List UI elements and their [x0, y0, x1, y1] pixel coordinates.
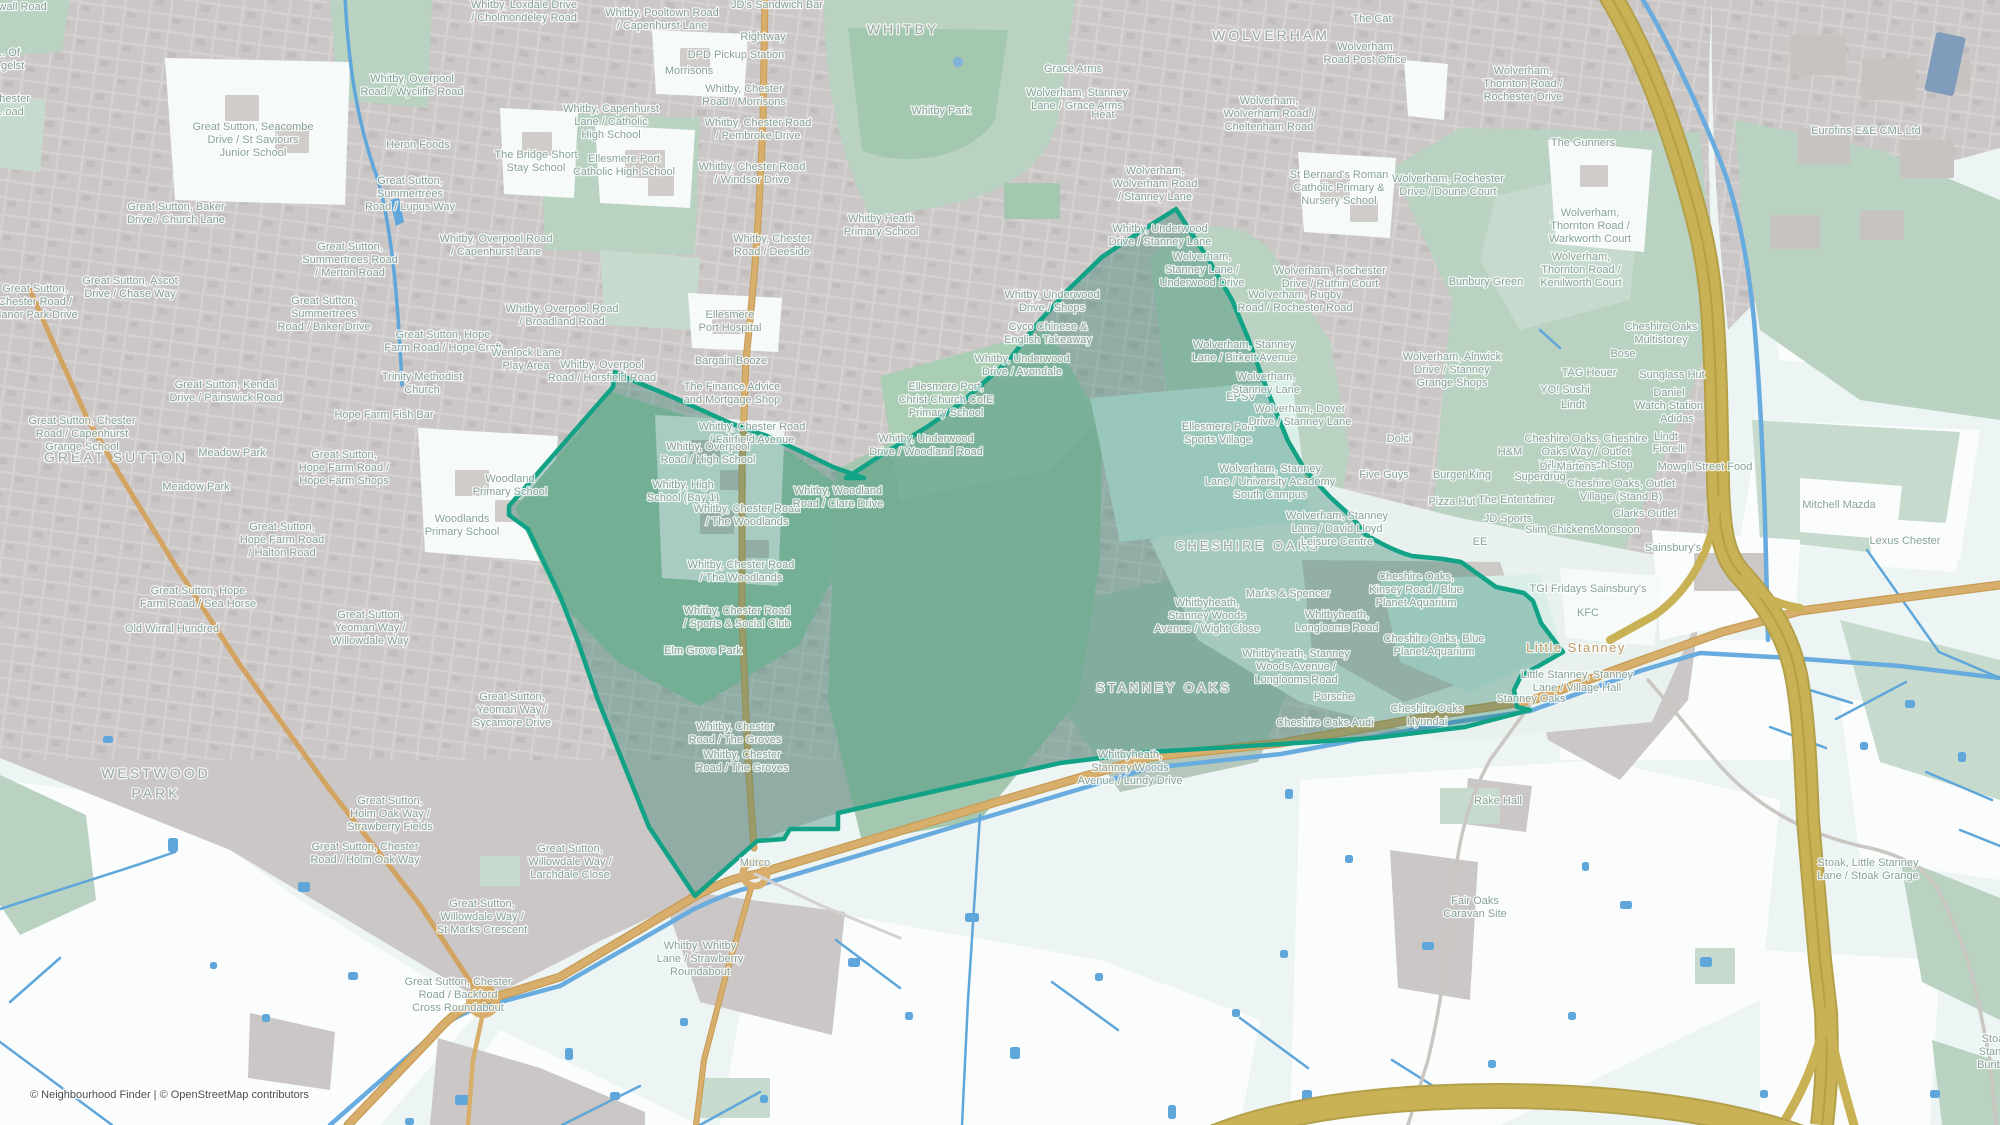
svg-text:Meadow Park: Meadow Park — [198, 447, 266, 459]
svg-text:Great Sutton,Holm Oak Way /Str: Great Sutton,Holm Oak Way /Strawberry Fi… — [347, 795, 433, 833]
svg-text:Great Sutton, AscotDrive / Cha: Great Sutton, AscotDrive / Chase Way — [82, 275, 177, 300]
svg-text:Wolverham, RochesterDrive / Ru: Wolverham, RochesterDrive / Ruthin Court — [1274, 265, 1386, 290]
svg-text:Pizza Hut: Pizza Hut — [1428, 496, 1475, 508]
svg-text:Marks & Spencer: Marks & Spencer — [1246, 588, 1331, 600]
svg-text:St Bernard's RomanCatholic Pri: St Bernard's RomanCatholic Primary &Nurs… — [1290, 169, 1389, 207]
svg-text:Grace Arms: Grace Arms — [1044, 63, 1103, 75]
svg-text:Wolverham, RochesterDrive / Do: Wolverham, RochesterDrive / Doune Court — [1392, 173, 1504, 198]
svg-text:Bargain Booze: Bargain Booze — [695, 355, 767, 367]
svg-text:Rake Hall: Rake Hall — [1474, 795, 1522, 807]
svg-text:DPD Pickup Station: DPD Pickup Station — [688, 49, 785, 61]
svg-text:EllesmerePort Hospital: EllesmerePort Hospital — [699, 309, 762, 334]
svg-text:Whitby, Chester Road/ The Wood: Whitby, Chester Road/ The Woodlands — [694, 503, 801, 528]
svg-text:Mitchell Mazda: Mitchell Mazda — [1802, 499, 1876, 511]
svg-text:Monsoon: Monsoon — [1594, 524, 1639, 536]
svg-text:Great Sutton, ChesterRoad / Ba: Great Sutton, ChesterRoad / BackfordCros… — [405, 976, 512, 1014]
svg-text:JD's Sandwich Bar: JD's Sandwich Bar — [731, 0, 823, 11]
svg-text:Wolverham, AlnwickDrive / Stan: Wolverham, AlnwickDrive / StanneyGrange … — [1403, 351, 1502, 389]
svg-text:Little Stanney, StanneyLane /: Little Stanney, StanneyLane / Village Ha… — [1521, 669, 1634, 694]
svg-text:The Bridge ShortStay School: The Bridge ShortStay School — [494, 149, 577, 174]
svg-text:Whitby, ChesterRoad / Deeside: Whitby, ChesterRoad / Deeside — [733, 233, 811, 258]
svg-text:YO! Sushi: YO! Sushi — [1540, 384, 1590, 396]
svg-text:Slim Chickens: Slim Chickens — [1525, 524, 1595, 536]
svg-text:Whitby, Overpool Road/ Broadla: Whitby, Overpool Road/ Broadland Road — [506, 303, 619, 328]
svg-text:Great Sutton,Willowdale Way /S: Great Sutton,Willowdale Way /St Marks Cr… — [437, 898, 527, 936]
svg-text:Heron Foods: Heron Foods — [386, 139, 450, 151]
svg-text:Whitby HeathPrimary School: Whitby HeathPrimary School — [844, 213, 919, 238]
svg-text:Porsche: Porsche — [1314, 691, 1354, 703]
svg-text:STANNEY OAKS: STANNEY OAKS — [1096, 680, 1232, 695]
svg-text:Great Sutton,Chester Road /Man: Great Sutton,Chester Road /Manor Park Dr… — [0, 283, 78, 321]
svg-text:Whitbyheath, StanneyWoods Aven: Whitbyheath, StanneyWoods Avenue /Longlo… — [1242, 648, 1350, 686]
svg-text:Fiorelli: Fiorelli — [1653, 443, 1685, 455]
svg-text:Heat: Heat — [1091, 109, 1114, 121]
svg-text:Wolverham, RugbyRoad / Rochest: Wolverham, RugbyRoad / Rochester Road — [1238, 289, 1353, 314]
svg-text:Whitby, ChesterRoad / Morrison: Whitby, ChesterRoad / Morrisons — [702, 83, 786, 108]
svg-text:Whitby, ChesterRoad / The Grov: Whitby, ChesterRoad / The Groves — [689, 721, 782, 746]
svg-text:The Finance Adviceand Mortgage: The Finance Adviceand Mortgage Shop — [684, 381, 781, 406]
svg-text:Great Sutton,Yeoman Way /Willo: Great Sutton,Yeoman Way /Willowdale Way — [331, 609, 409, 647]
svg-text:Whitby, ChesterRoad / The Grov: Whitby, ChesterRoad / The Groves — [696, 749, 789, 774]
svg-text:TGI Fridays Sainsbury's: TGI Fridays Sainsbury's — [1529, 583, 1647, 595]
svg-text:Lindt: Lindt — [1654, 431, 1678, 443]
svg-text:Burger King: Burger King — [1433, 469, 1491, 481]
svg-text:Murco: Murco — [740, 857, 771, 869]
svg-text:Old Wirral Hundred: Old Wirral Hundred — [125, 623, 219, 635]
svg-text:Rightway: Rightway — [740, 31, 786, 43]
svg-text:Whitby, Loxdale Drive/ Cholmon: Whitby, Loxdale Drive/ Cholmondeley Road — [471, 0, 577, 24]
svg-text:Great Sutton,Hope Farm Road /H: Great Sutton,Hope Farm Road /Hope Farm S… — [299, 449, 390, 487]
svg-text:Whitby, OverpoolRoad / High Sc: Whitby, OverpoolRoad / High School — [661, 441, 756, 466]
svg-text:Lindt: Lindt — [1561, 399, 1585, 411]
svg-text:Whitby Park: Whitby Park — [911, 105, 971, 117]
svg-text:Whitby, Chester Road/ Sports &: Whitby, Chester Road/ Sports & Social Cl… — [684, 605, 791, 630]
svg-text:Little Stanney: Little Stanney — [1526, 640, 1626, 655]
svg-text:Adidas: Adidas — [1660, 413, 1694, 425]
svg-text:Eurofins E&E CML Ltd: Eurofins E&E CML Ltd — [1811, 125, 1921, 137]
svg-text:Wolverham,Thornton Road /Kenil: Wolverham,Thornton Road /Kenilworth Cour… — [1540, 251, 1621, 289]
svg-text:WoodlandsPrimary School: WoodlandsPrimary School — [425, 513, 500, 538]
svg-text:The Entertainer: The Entertainer — [1478, 494, 1554, 506]
svg-text:Whitby, OverpoolRoad / Horsfie: Whitby, OverpoolRoad / Horsfield Road — [548, 359, 656, 384]
svg-text:Whitby, WoodlandRoad / Clare D: Whitby, WoodlandRoad / Clare Drive — [793, 485, 883, 510]
svg-text:Fair OaksCaravan Site: Fair OaksCaravan Site — [1443, 895, 1507, 920]
svg-text:Wolverham, StanneyLane / Birke: Wolverham, StanneyLane / Birkett Avenue — [1192, 339, 1296, 364]
svg-text:Dr. Martens: Dr. Martens — [1540, 461, 1597, 473]
svg-text:Whitby, Pooltown Road/ Capenhu: Whitby, Pooltown Road/ Capenhurst Lane — [605, 7, 719, 32]
svg-text:Great Sutton, HopeFarm Road /: Great Sutton, HopeFarm Road / Sea Horse — [140, 585, 256, 610]
svg-text:Great Sutton, BakerDrive / Chu: Great Sutton, BakerDrive / Church Lane — [127, 201, 225, 226]
svg-text:Great Sutton,Hope Farm Road/ H: Great Sutton,Hope Farm Road/ Halton Road — [240, 521, 324, 559]
svg-text:Whitby, OverpoolRoad / Wycliff: Whitby, OverpoolRoad / Wycliffe Road — [360, 73, 463, 98]
svg-text:Whitby, UnderwoodDrive / Avond: Whitby, UnderwoodDrive / Avondale — [974, 353, 1069, 378]
svg-text:CHESHIRE OAKS: CHESHIRE OAKS — [1175, 538, 1321, 553]
svg-text:EE: EE — [1473, 536, 1488, 548]
svg-text:Dolci: Dolci — [1387, 433, 1411, 445]
svg-text:Ellesmere Port,Christ Church C: Ellesmere Port,Christ Church CofEPrimary… — [899, 381, 994, 419]
svg-text:Clarks Outlet: Clarks Outlet — [1613, 508, 1677, 520]
svg-text:KFC: KFC — [1577, 607, 1599, 619]
svg-text:Cheshire Oaks, BluePlanet Aqua: Cheshire Oaks, BluePlanet Aquarium — [1384, 633, 1485, 658]
svg-text:Whitby, Chester Road/ Windsor: Whitby, Chester Road/ Windsor Drive — [699, 161, 806, 186]
svg-text:Sainsbury's: Sainsbury's — [1645, 542, 1702, 554]
svg-text:The Gunners: The Gunners — [1551, 137, 1616, 149]
svg-text:© Neighbourhood Finder | © Ope: © Neighbourhood Finder | © OpenStreetMap… — [30, 1089, 309, 1101]
svg-text:Ellesmere PortCatholic High Sc: Ellesmere PortCatholic High School — [573, 153, 675, 178]
svg-text:Stanney Oaks: Stanney Oaks — [1496, 693, 1566, 705]
svg-text:Cheshire Oaks,Kinsey Road / Bl: Cheshire Oaks,Kinsey Road / BluePlanet A… — [1369, 571, 1463, 609]
svg-text:Wolverham,Thornton Road /Warkw: Wolverham,Thornton Road /Warkworth Court — [1549, 207, 1631, 245]
svg-text:H&M: H&M — [1498, 446, 1522, 458]
svg-text:WHITBY: WHITBY — [867, 21, 939, 37]
svg-text:Whitby, UnderwoodDrive / Woodl: Whitby, UnderwoodDrive / Woodland Road — [869, 433, 983, 458]
svg-text:Great Sutton, HopeFarm Road /: Great Sutton, HopeFarm Road / Hope Croft — [384, 329, 501, 354]
svg-text:Great Sutton,Willowdale Way /L: Great Sutton,Willowdale Way /Larchdale C… — [528, 843, 612, 881]
svg-text:Cheshire OaksMultistorey: Cheshire OaksMultistorey — [1625, 321, 1698, 346]
svg-text:...wall Road: ...wall Road — [0, 1, 47, 13]
svg-text:Whitby, UnderwoodDrive / Stann: Whitby, UnderwoodDrive / Stanney Lane — [1109, 223, 1212, 248]
svg-text:The Cat: The Cat — [1352, 13, 1391, 25]
svg-text:WOLVERHAM: WOLVERHAM — [1212, 27, 1330, 43]
svg-text:Ellesmere PortSports Village: Ellesmere PortSports Village — [1182, 421, 1254, 446]
svg-text:Wolverham,Thornton Road /Roche: Wolverham,Thornton Road /Rochester Drive — [1483, 65, 1563, 103]
svg-text:Hope Farm Fish Bar: Hope Farm Fish Bar — [334, 409, 433, 421]
svg-text:Five Guys: Five Guys — [1359, 469, 1409, 481]
svg-text:Whitby, HighSchool (Bay 1): Whitby, HighSchool (Bay 1) — [647, 479, 719, 504]
svg-text:Great Sutton, ChesterRoad / Ho: Great Sutton, ChesterRoad / Holm Oak Way — [310, 841, 420, 866]
svg-text:Whitbyheath,Longlooms Road: Whitbyheath,Longlooms Road — [1295, 609, 1378, 634]
svg-text:Whitby, Overpool Road/ Capenhu: Whitby, Overpool Road/ Capenhurst Lane — [440, 233, 553, 258]
svg-text:Great Sutton, KendalDrive / Pa: Great Sutton, KendalDrive / Painswick Ro… — [169, 379, 282, 404]
svg-text:Bose: Bose — [1610, 348, 1635, 360]
svg-text:Cheshire Oaks Audi: Cheshire Oaks Audi — [1276, 717, 1373, 729]
svg-text:Bunbury Green: Bunbury Green — [1449, 276, 1524, 288]
svg-text:Wolverham,Stanney Lane: Wolverham,Stanney Lane — [1232, 371, 1300, 396]
svg-text:Mowgli Street Food: Mowgli Street Food — [1658, 461, 1753, 473]
svg-text:Whitby, Chester Road/ The Wood: Whitby, Chester Road/ The Woodlands — [688, 559, 795, 584]
svg-text:Sunglass Hut: Sunglass Hut — [1639, 369, 1704, 381]
svg-text:Great Sutton,SummertreesRoad /: Great Sutton,SummertreesRoad / Baker Dri… — [278, 295, 371, 333]
svg-text:Stoak, Little StanneyLane / St: Stoak, Little StanneyLane / Stoak Grange — [1817, 857, 1919, 882]
svg-text:TAG Heuer: TAG Heuer — [1562, 367, 1617, 379]
svg-text:Cheshire Oaks, OutletVillage (: Cheshire Oaks, OutletVillage (Stand B) — [1567, 478, 1675, 503]
svg-text:Elm Grove Park: Elm Grove Park — [664, 645, 742, 657]
svg-text:Morrisons: Morrisons — [665, 65, 714, 77]
svg-text:Wolverham, DoverDrive / Stanne: Wolverham, DoverDrive / Stanney Lane — [1249, 403, 1352, 428]
svg-text:Great Sutton,Yeoman Way /Sycam: Great Sutton,Yeoman Way /Sycamore Drive — [473, 691, 551, 729]
svg-text:Whitby, Chester Road/ Pembroke: Whitby, Chester Road/ Pembroke Drive — [705, 117, 812, 142]
svg-text:Lexus Chester: Lexus Chester — [1870, 535, 1941, 547]
svg-text:Meadow Park: Meadow Park — [162, 481, 230, 493]
svg-text:Cyco Chinese &English Takeaway: Cyco Chinese &English Takeaway — [1004, 321, 1092, 346]
svg-text:Great Sutton,SummertreesRoad /: Great Sutton,SummertreesRoad / Lupus Way — [365, 175, 456, 213]
